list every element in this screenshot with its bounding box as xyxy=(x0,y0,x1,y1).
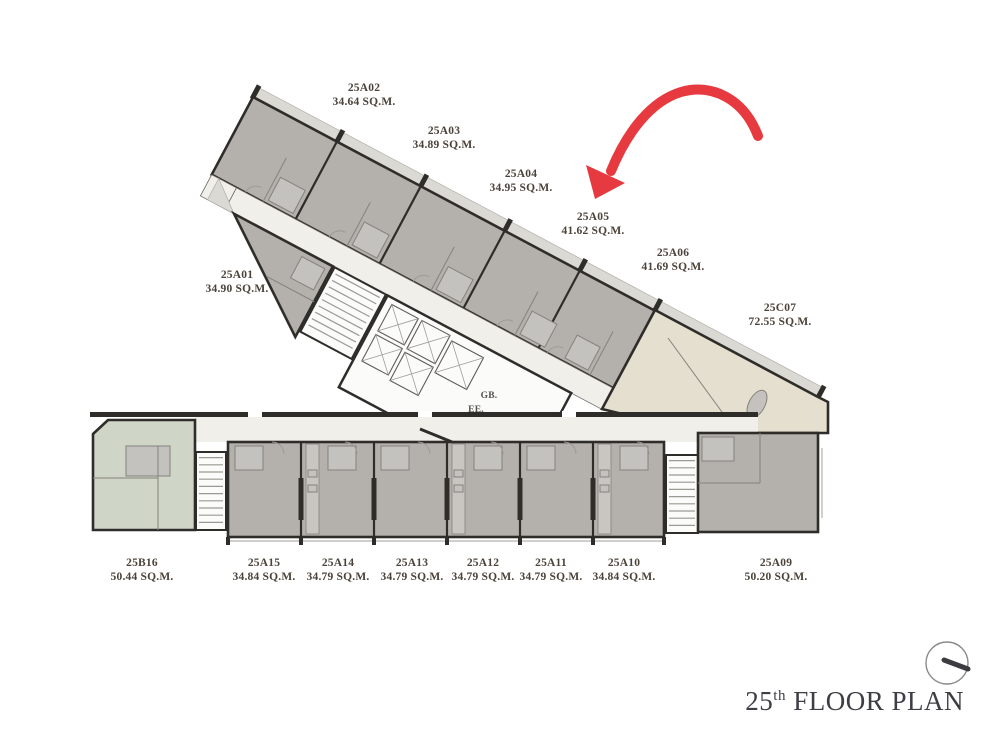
unit-label-25C07: 25C0772.55 SQ.M. xyxy=(749,302,812,329)
arrowhead-icon xyxy=(586,165,625,199)
unit-label-25A11: 25A1134.79 SQ.M. xyxy=(520,557,583,584)
stairwell-right xyxy=(666,455,698,533)
unit-label-25A10: 25A1034.84 SQ.M. xyxy=(593,557,656,584)
unit-label-25A13: 25A1334.79 SQ.M. xyxy=(381,557,444,584)
core-label-gb: GB. xyxy=(481,391,498,401)
unit-label-25A15: 25A1534.84 SQ.M. xyxy=(233,557,296,584)
unit-label-25A02: 25A0234.64 SQ.M. xyxy=(333,82,396,109)
unit-label-25A04: 25A0434.95 SQ.M. xyxy=(490,168,553,195)
red-arrow-annotation xyxy=(586,90,758,199)
core-label-ee: EE. xyxy=(468,405,484,415)
floor-plan-svg xyxy=(0,0,1000,750)
unit-label-25A01: 25A0134.90 SQ.M. xyxy=(206,269,269,296)
unit-label-25A14: 25A1434.79 SQ.M. xyxy=(307,557,370,584)
unit-label-25A03: 25A0334.89 SQ.M. xyxy=(413,125,476,152)
unit-label-25A06: 25A0641.69 SQ.M. xyxy=(642,247,705,274)
unit-label-25A09: 25A0950.20 SQ.M. xyxy=(745,557,808,584)
north-compass-icon xyxy=(926,642,968,684)
floor-plan-title: 25th FLOOR PLAN xyxy=(745,686,964,717)
unit-label-25B16: 25B1650.44 SQ.M. xyxy=(111,557,174,584)
unit-label-25A05: 25A0541.62 SQ.M. xyxy=(562,211,625,238)
floor-plan-canvas: 25A0234.64 SQ.M.25A0334.89 SQ.M.25A0434.… xyxy=(0,0,1000,750)
unit-label-25A12: 25A1234.79 SQ.M. xyxy=(452,557,515,584)
title-text: FLOOR PLAN xyxy=(786,686,964,716)
title-number: 25 xyxy=(745,686,773,716)
corridor-bottom xyxy=(195,417,758,442)
title-ordinal: th xyxy=(773,688,786,704)
bottom-wing xyxy=(90,411,822,545)
stairwell-left xyxy=(196,452,226,530)
